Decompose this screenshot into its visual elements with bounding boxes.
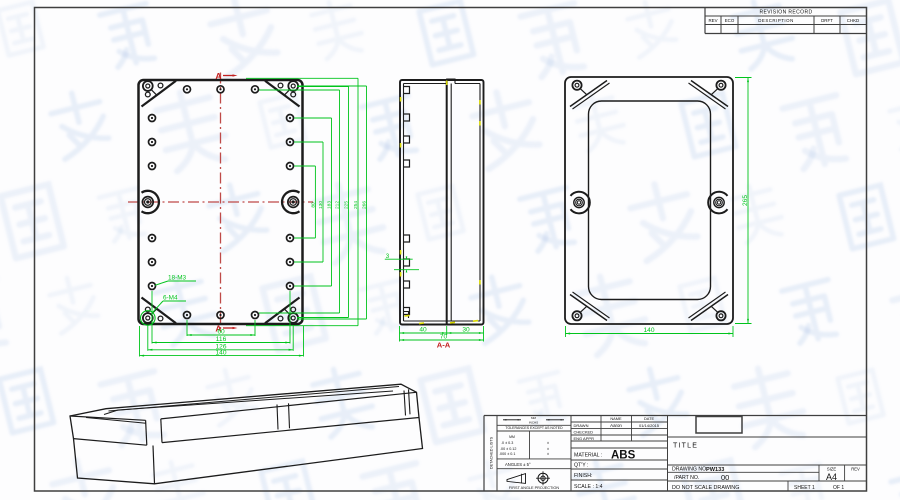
svg-text:3: 3 [386,253,390,260]
svg-text:DESCRIPTION: DESCRIPTION [758,18,794,23]
svg-text:60: 60 [217,329,225,336]
svg-text:TOLERANCES EXCEPT AS NOTED: TOLERANCES EXCEPT AS NOTED [505,426,563,430]
svg-text:DRFT: DRFT [821,18,833,23]
svg-text:CHKD: CHKD [847,18,859,23]
svg-text:01/14/2015: 01/14/2015 [639,423,660,428]
svg-text:6-M4: 6-M4 [163,295,178,302]
svg-text:40: 40 [419,327,427,334]
svg-text:Aaron: Aaron [610,423,622,428]
svg-text:ABS: ABS [611,450,636,462]
svg-text:SHEET 1: SHEET 1 [794,485,815,491]
svg-text:FIRST ANGLE PROJECTION: FIRST ANGLE PROJECTION [509,486,559,490]
svg-text:116: 116 [216,336,227,343]
svg-text:DO NOT SCALE DRAWING: DO NOT SCALE DRAWING [672,485,739,491]
svg-text:REV: REV [708,18,717,23]
svg-text:00: 00 [721,473,729,482]
svg-text:DETACHED LISTS: DETACHED LISTS [490,436,494,469]
svg-text:.00 ± 0.12: .00 ± 0.12 [500,447,516,451]
svg-text:SIZE: SIZE [827,466,837,471]
svg-text:140: 140 [215,349,226,356]
svg-text:TITLE: TITLE [673,443,698,450]
svg-text:MM: MM [509,435,515,439]
svg-text:INCHS: INCHS [529,420,538,424]
svg-text:A-A: A-A [437,341,451,350]
svg-text:DATE: DATE [644,416,654,421]
svg-text:PW133: PW133 [706,467,724,473]
svg-text:ENG APPR: ENG APPR [574,436,595,441]
svg-text:OF 1: OF 1 [833,485,844,491]
svg-text:MATERIAL :: MATERIAL : [574,452,602,458]
svg-text:254: 254 [353,201,359,209]
svg-text:FINISH:: FINISH: [574,473,592,479]
svg-text:DRAWN: DRAWN [574,423,589,428]
svg-text:.000 ± 0.1: .000 ± 0.1 [499,452,515,456]
svg-text:SCALE : 1:4: SCALE : 1:4 [574,484,603,490]
svg-text:A: A [215,71,221,81]
svg-text:/PART NO.: /PART NO. [674,475,699,481]
svg-text:REV: REV [851,466,860,471]
svg-text:REVISION RECORD: REVISION RECORD [760,10,813,16]
svg-text:225: 225 [344,201,350,209]
svg-text:±: ± [547,441,549,445]
svg-text:.0 ± 0.3: .0 ± 0.3 [501,441,513,445]
svg-text:130: 130 [318,201,324,209]
svg-text:ECO: ECO [725,18,735,23]
svg-text:265: 265 [742,195,749,206]
svg-text:266: 266 [362,201,368,209]
svg-text:DRAWING NO.: DRAWING NO. [672,467,708,473]
svg-text:±: ± [547,447,549,451]
svg-text:NAME: NAME [610,416,622,421]
svg-text:QT'Y :: QT'Y : [574,462,588,468]
svg-text:212: 212 [335,201,341,209]
svg-text:18-M3: 18-M3 [168,275,187,282]
svg-text:A4: A4 [826,472,837,482]
svg-text:ANGLES ± 5°: ANGLES ± 5° [505,462,531,467]
svg-text:80: 80 [310,202,316,208]
svg-text:30: 30 [462,327,470,334]
svg-text:140: 140 [643,327,654,334]
svg-text:183: 183 [327,201,333,209]
svg-text:CHECKED: CHECKED [574,429,594,434]
svg-text:±: ± [547,452,549,456]
